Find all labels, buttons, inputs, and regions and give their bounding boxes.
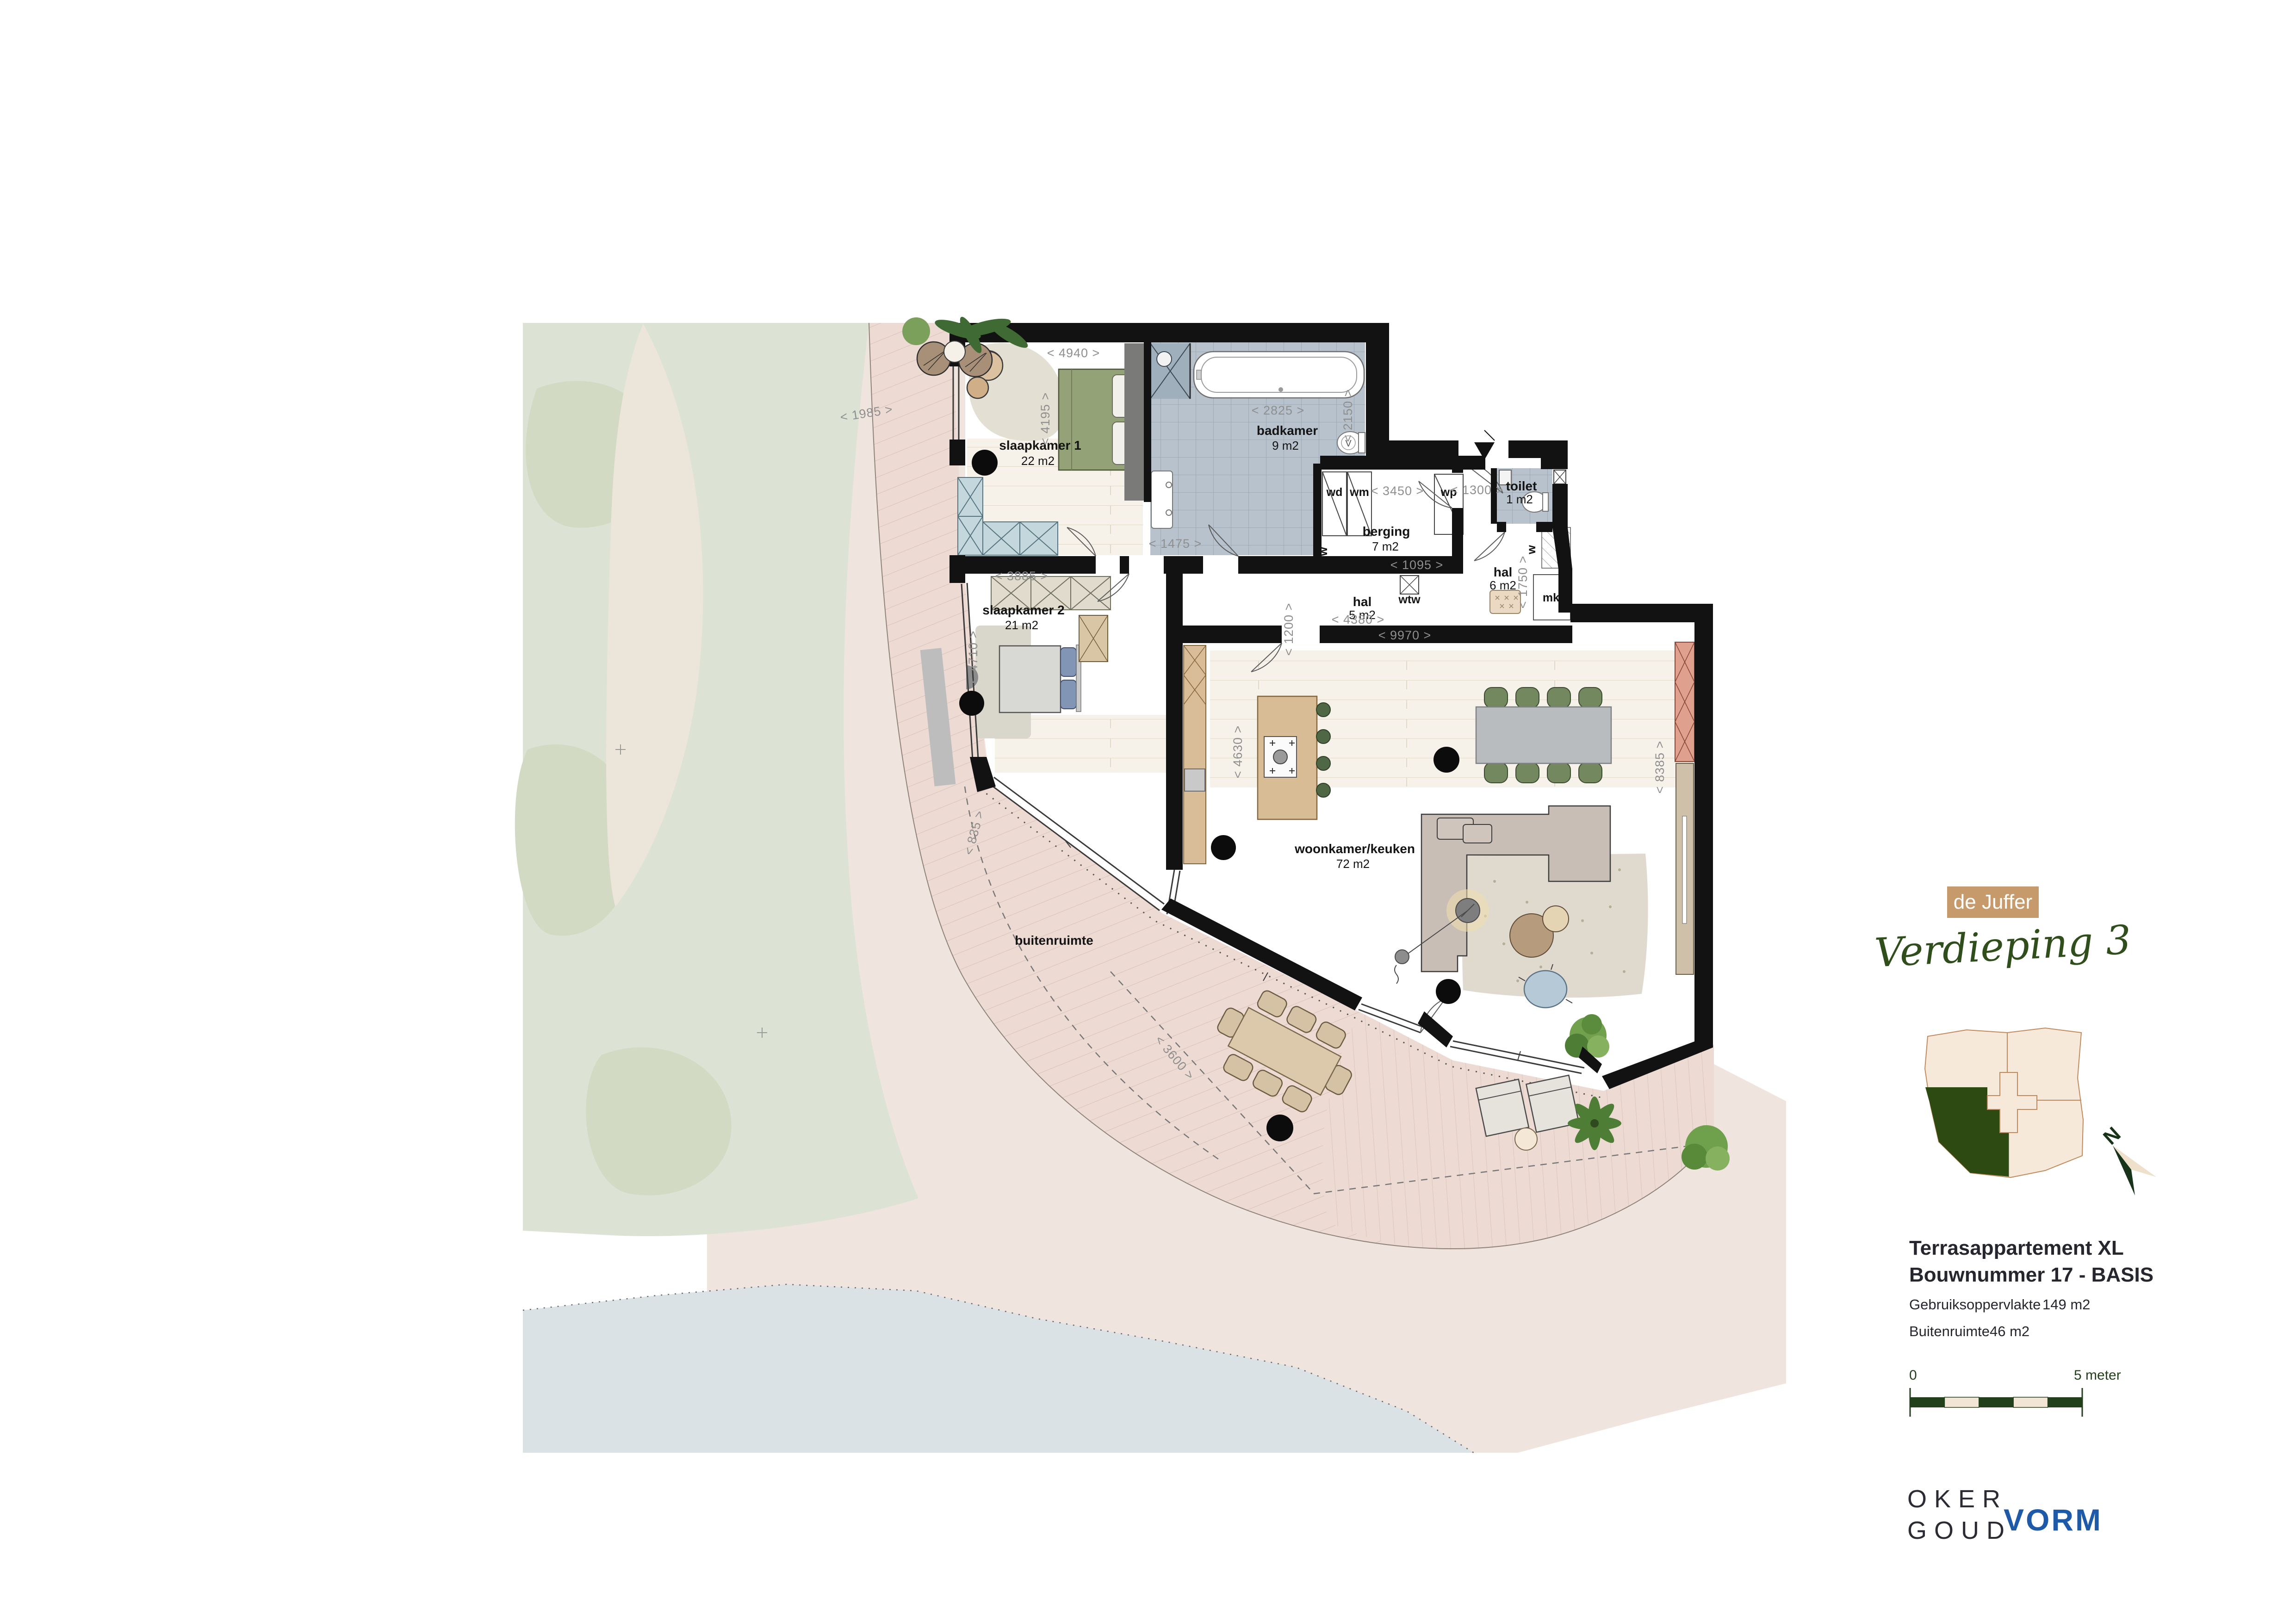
dim-2150: < 2150 > bbox=[1341, 389, 1355, 442]
label-mk: mk bbox=[1543, 591, 1559, 604]
bathtub bbox=[1194, 352, 1364, 398]
outdoor-area-value: 46 m2 bbox=[1990, 1323, 2029, 1339]
north-compass: N bbox=[2099, 1122, 2156, 1196]
label-wd: wd bbox=[1326, 486, 1343, 499]
dining-table bbox=[1476, 707, 1611, 763]
label-hal5: hal bbox=[1353, 595, 1371, 609]
label-woonkamer: woonkamer/keuken bbox=[1294, 842, 1415, 856]
label-badkamer: badkamer bbox=[1257, 423, 1318, 438]
floor-script-text: Verdieping 3 bbox=[1874, 917, 2132, 977]
dim-8385: < 8385 > bbox=[1653, 741, 1667, 794]
dim-4380: < 4380 > bbox=[1332, 613, 1385, 626]
floorplan-page: V bbox=[0, 0, 2296, 1623]
dim-4940: < 4940 > bbox=[1047, 346, 1100, 360]
project-badge-text: de Juffer bbox=[1954, 891, 2032, 913]
floorplan-canvas: V bbox=[0, 0, 2296, 1623]
dim-1200: < 1200 > bbox=[1282, 603, 1296, 656]
sofa-pillow-2 bbox=[1463, 824, 1492, 843]
scale-bar: 0 5 meter bbox=[1909, 1368, 2121, 1417]
kitchen-island bbox=[1258, 696, 1317, 819]
apartment-info: Terrasappartement XL Bouwnummer 17 - BAS… bbox=[1909, 1237, 2153, 1339]
cabinet-slaapkamer2 bbox=[1079, 615, 1108, 662]
wardrobe-panel-slaapkamer1 bbox=[1124, 343, 1144, 501]
label-slaapkamer2: slaapkamer 2 bbox=[982, 603, 1064, 617]
label-wtw: wtw bbox=[1398, 593, 1421, 606]
label-buitenruimte: buitenruimte bbox=[1015, 933, 1093, 948]
usable-area-label: Gebruiksoppervlakte bbox=[1909, 1296, 2041, 1313]
dim-4710: < 4710 > bbox=[966, 631, 980, 684]
keyplan: N bbox=[1925, 1028, 2156, 1196]
logos: OKER GOUD VORM bbox=[1907, 1485, 2103, 1544]
wtw-unit bbox=[1400, 576, 1419, 594]
title-block: de Juffer Verdieping 3 bbox=[1874, 886, 2132, 976]
dim-1750: < 1750 > bbox=[1516, 556, 1530, 609]
dim-1475: < 1475 > bbox=[1149, 537, 1202, 551]
apartment-bouwnummer: Bouwnummer 17 - BASIS bbox=[1909, 1264, 2153, 1286]
dim-4195: < 4195 > bbox=[1038, 392, 1052, 446]
apartment-type: Terrasappartement XL bbox=[1909, 1237, 2124, 1259]
label-toilet: toilet bbox=[1506, 479, 1537, 493]
dim-3450: < 3450 > bbox=[1371, 484, 1424, 498]
dim-2825: < 2825 > bbox=[1252, 403, 1305, 417]
outdoor-area-label: Buitenruimte bbox=[1909, 1323, 1990, 1339]
outdoor-side-table bbox=[1515, 1128, 1537, 1150]
shaft-small-x bbox=[1554, 470, 1566, 484]
scale-end: 5 meter bbox=[2074, 1368, 2121, 1383]
label-hal6: hal bbox=[1494, 565, 1512, 579]
area-hal6: 6 m2 bbox=[1489, 578, 1516, 592]
kitchen-wall-cabinets bbox=[1184, 645, 1206, 864]
shower bbox=[1150, 343, 1190, 399]
oker-logo-line1: OKER bbox=[1907, 1485, 2008, 1513]
area-toilet: 1 m2 bbox=[1506, 492, 1533, 506]
dim-1095: < 1095 > bbox=[1390, 558, 1444, 572]
usable-area-value: 149 m2 bbox=[2042, 1296, 2090, 1313]
area-berging: 7 m2 bbox=[1372, 539, 1399, 553]
label-wm: wm bbox=[1349, 486, 1369, 499]
vorm-logo: VORM bbox=[2004, 1503, 2103, 1537]
oker-logo-line2: GOUD bbox=[1907, 1517, 2012, 1544]
label-vent-shaft: w bbox=[1525, 545, 1538, 555]
dim-1300: < 1300 > bbox=[1451, 483, 1504, 497]
label-vent-berging: w bbox=[1317, 547, 1330, 557]
scale-start: 0 bbox=[1909, 1368, 1917, 1383]
label-berging: berging bbox=[1363, 524, 1410, 539]
area-slaapkamer1: 22 m2 bbox=[1021, 454, 1055, 468]
palm-tree bbox=[1568, 1096, 1621, 1150]
north-needle-light bbox=[2113, 1146, 2156, 1177]
dim-3885: < 3885 > bbox=[995, 569, 1049, 583]
area-woonkamer: 72 m2 bbox=[1336, 857, 1370, 871]
right-wall-storage bbox=[1675, 642, 1694, 974]
coffee-table-small bbox=[1543, 906, 1569, 932]
dim-9970: < 9970 > bbox=[1378, 628, 1432, 642]
vanity bbox=[1151, 471, 1173, 528]
area-badkamer: 9 m2 bbox=[1272, 439, 1299, 452]
dim-4630: < 4630 > bbox=[1231, 725, 1245, 779]
kitchen-sink bbox=[1185, 769, 1205, 791]
sideboard-handle bbox=[1682, 816, 1687, 923]
area-slaapkamer2: 21 m2 bbox=[1005, 618, 1038, 632]
north-letter: N bbox=[2099, 1122, 2125, 1149]
north-needle-dark bbox=[2113, 1146, 2135, 1196]
